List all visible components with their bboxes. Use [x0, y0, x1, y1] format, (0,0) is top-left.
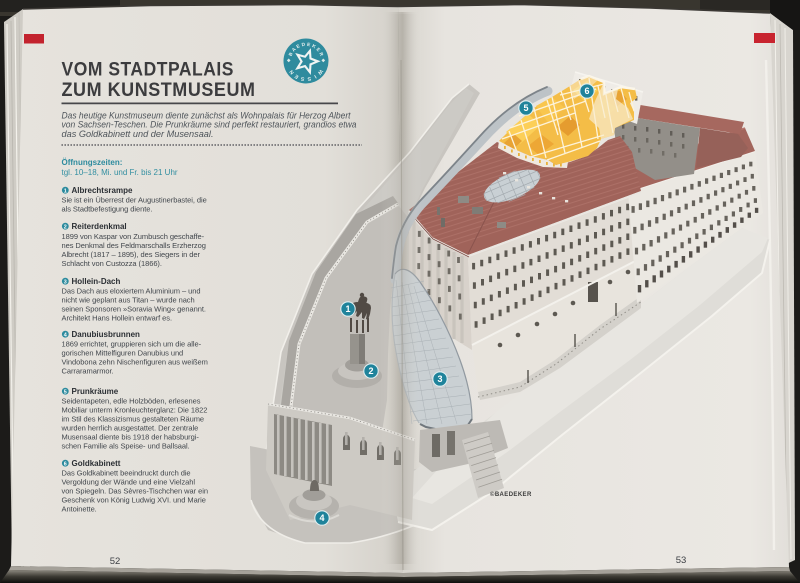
- svg-text:Das Dach aus eloxiertem Alumin: Das Dach aus eloxiertem Aluminium – und: [62, 286, 201, 295]
- svg-text:Danubiusbrunnen: Danubiusbrunnen: [72, 330, 141, 339]
- svg-text:5: 5: [64, 390, 67, 396]
- svg-text:1: 1: [64, 189, 67, 195]
- svg-text:das Goldkabinett und der Musen: das Goldkabinett und der Musensaal.: [62, 128, 214, 139]
- svg-text:Prunkräume: Prunkräume: [72, 387, 119, 396]
- svg-text:nicht wie geplant aus Titan –: nicht wie geplant aus Titan – wurde nach: [62, 295, 195, 304]
- svg-text:Schlacht von Custozza (1866).: Schlacht von Custozza (1866).: [62, 259, 162, 268]
- svg-text:Das Goldkabinett beeindruckt d: Das Goldkabinett beeindruckt durch die: [62, 469, 191, 478]
- svg-text:1899 von Kaspar von Zumbusch g: 1899 von Kaspar von Zumbusch geschaffe-: [62, 232, 205, 241]
- svg-text:von Spiegeln. Das Sèvres-Tisch: von Spiegeln. Das Sèvres-Tischchen war e…: [62, 487, 208, 496]
- svg-text:Vindobona zehn Nischenfiguren: Vindobona zehn Nischenfiguren aus weißem: [62, 357, 208, 366]
- svg-text:VOM STADTPALAIS: VOM STADTPALAIS: [62, 59, 235, 81]
- svg-text:Albrecht (1817 – 1895), des Si: Albrecht (1817 – 1895), des Siegers in d…: [62, 250, 201, 259]
- svg-text:nes Denkmal des Feldmarschalls: nes Denkmal des Feldmarschalls Erzherzog: [62, 241, 206, 250]
- svg-text:als Stadtbefestigung diente.: als Stadtbefestigung diente.: [62, 204, 153, 213]
- svg-text:Vergoldung der Wände und eine: Vergoldung der Wände und eine Vielzahl: [62, 478, 196, 487]
- svg-text:Hollein-Dach: Hollein-Dach: [72, 277, 121, 286]
- svg-text:6: 6: [64, 462, 67, 468]
- svg-text:im Stil des Klassizismus gesta: im Stil des Klassizismus gestalteten Räu…: [62, 414, 205, 423]
- svg-text:ZUM KUNSTMUSEUM: ZUM KUNSTMUSEUM: [62, 79, 256, 101]
- svg-text:Sie ist ein Überrest der Augus: Sie ist ein Überrest der Augustinerbaste…: [62, 195, 207, 204]
- svg-text:4: 4: [319, 513, 324, 523]
- svg-text:3: 3: [64, 280, 67, 286]
- svg-text:Geschenk von König Ludwig XVI.: Geschenk von König Ludwig XVI. und Marie: [62, 496, 206, 505]
- svg-text:5: 5: [523, 103, 528, 113]
- svg-text:schen Familie als Speise- und: schen Familie als Speise- und Ballsaal.: [62, 441, 190, 450]
- svg-text:52: 52: [110, 556, 121, 567]
- svg-text:4: 4: [64, 333, 67, 339]
- svg-text:1: 1: [345, 304, 350, 314]
- svg-text:Öffnungszeiten:: Öffnungszeiten:: [62, 158, 123, 167]
- svg-text:6: 6: [584, 86, 589, 96]
- svg-text:Albrechtsrampe: Albrechtsrampe: [72, 186, 133, 195]
- svg-text:2: 2: [64, 225, 67, 231]
- svg-text:Architekt Hans Hollein entwarf: Architekt Hans Hollein entwarf es.: [62, 313, 173, 322]
- svg-text:1869 errichtet, gruppieren sic: 1869 errichtet, gruppieren sich um die a…: [62, 339, 202, 348]
- svg-text:tgl. 10–18, Mi. und Fr. bis 21: tgl. 10–18, Mi. und Fr. bis 21 Uhr: [62, 168, 178, 177]
- svg-text:Seidentapeten, edle Holzböden,: Seidentapeten, edle Holzböden, erlesenes: [62, 396, 201, 405]
- svg-text:Goldkabinett: Goldkabinett: [72, 459, 121, 468]
- svg-text:53: 53: [676, 555, 687, 566]
- svg-text:©BAEDEKER: ©BAEDEKER: [490, 491, 532, 498]
- svg-text:seinen Sponsoren »Soravia Wing: seinen Sponsoren »Soravia Wing« genannt.: [62, 304, 206, 313]
- svg-text:Carraramarmor.: Carraramarmor.: [62, 366, 114, 375]
- svg-text:Antoinette.: Antoinette.: [62, 505, 97, 514]
- svg-text:3: 3: [437, 374, 442, 384]
- svg-text:gorischen Mittelfiguren Danubi: gorischen Mittelfiguren Danubius und: [62, 348, 184, 357]
- svg-text:Musensaal diente bis 1918 der: Musensaal diente bis 1918 der habsburgi-: [62, 432, 200, 441]
- svg-text:Reiterdenkmal: Reiterdenkmal: [72, 222, 127, 231]
- svg-text:Mobiliar unterm Kronleuchtergl: Mobiliar unterm Kronleuchterglanz: Die 1…: [62, 405, 208, 414]
- svg-text:2: 2: [368, 366, 373, 376]
- svg-text:wurden herrlich ausgestattet.: wurden herrlich ausgestattet. Der zentra…: [61, 423, 199, 432]
